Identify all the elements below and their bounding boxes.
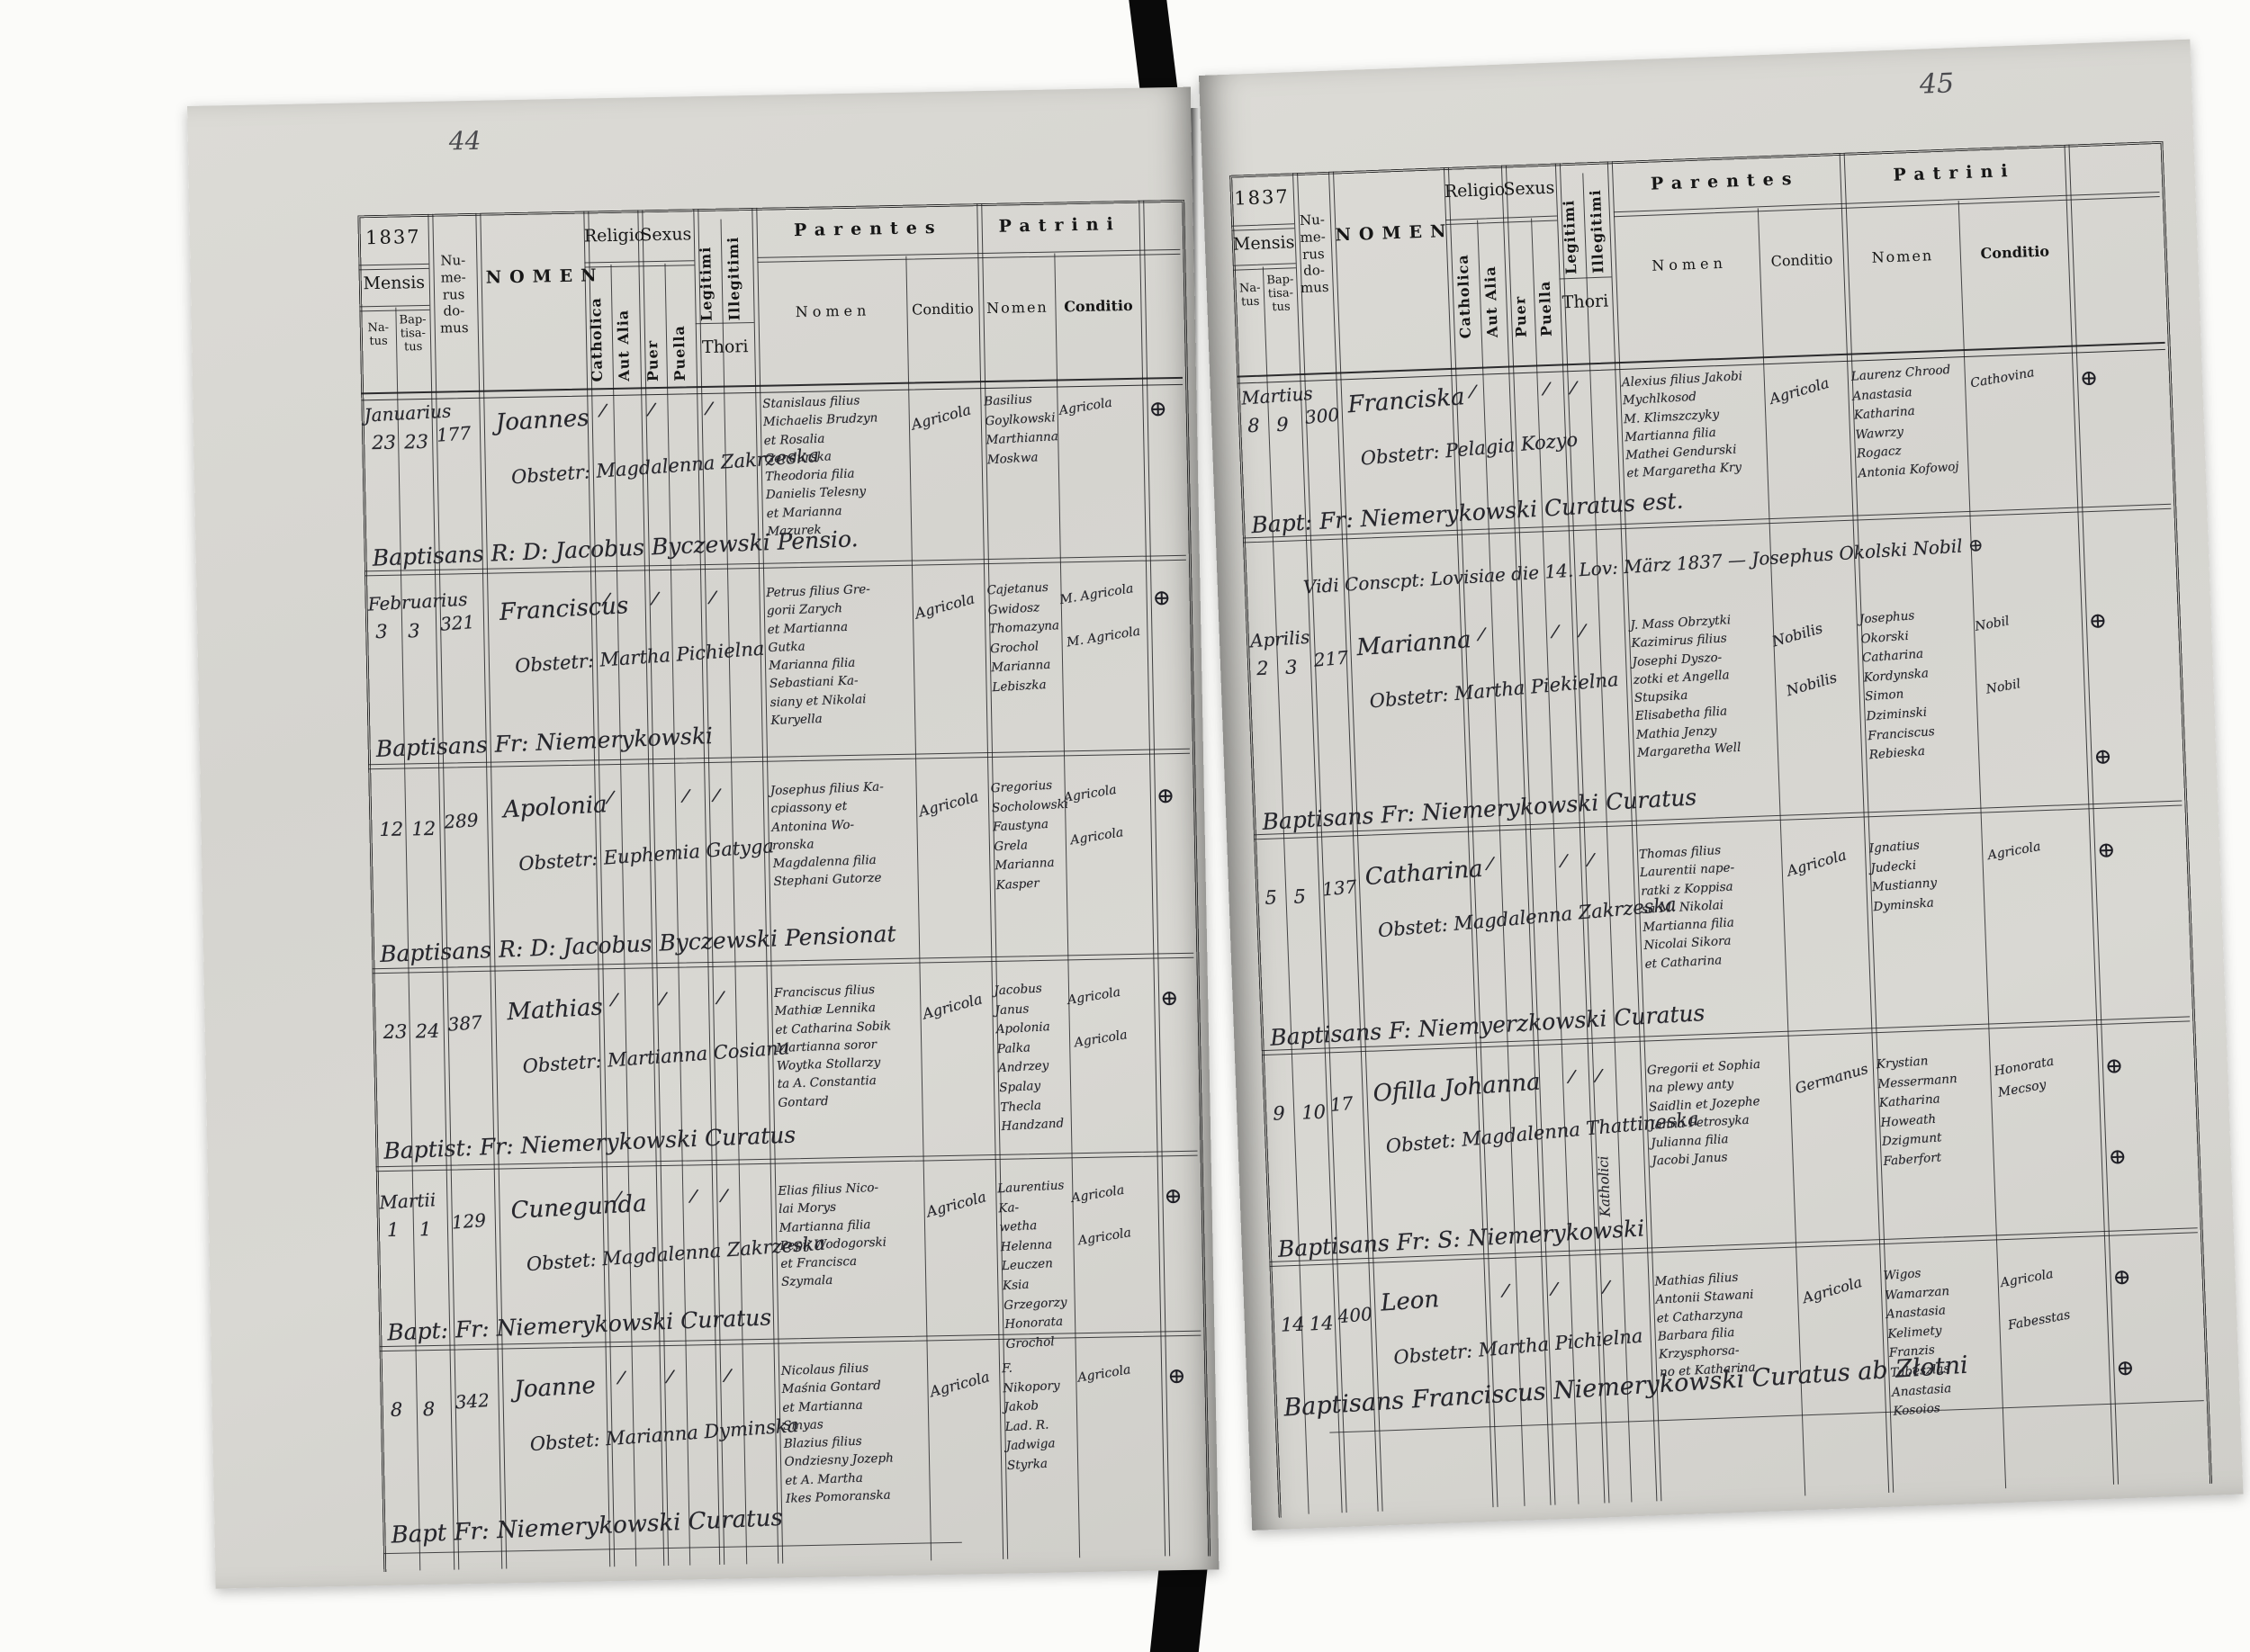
tick-legitimi: / <box>1587 849 1595 870</box>
entry-parents: Thomas filius Laurentii nape- ratki z Ko… <box>1638 839 1781 974</box>
entry-born-day: 9 <box>1273 1102 1285 1124</box>
entry-baptized-day: 9 <box>1276 414 1289 435</box>
book-scan: 44 1837 Mensis Na-tus Bap-tisa-tus Nu-me… <box>0 0 2250 1652</box>
entry-born-day: 12 <box>379 819 403 841</box>
tick-legitimi: / <box>716 988 724 1009</box>
entry-born-day: 1 <box>387 1219 400 1241</box>
col-header-patrini-nomen: Nomen <box>981 299 1053 318</box>
entry-godparents-condition: Honorata Mecsoy <box>1993 1045 2100 1104</box>
col-header-mensis: Mensis <box>360 273 428 293</box>
tick-puella: / <box>1560 850 1568 871</box>
tick-catholica: / <box>1486 853 1494 874</box>
tick-puer: / <box>659 989 667 1010</box>
register-entry: Aprilis 2 3 217 Marianna Obstetr: Martha… <box>1219 592 2218 830</box>
entry-name: Joanne <box>514 1372 597 1404</box>
entry-cross-mark: ⊕ <box>1160 975 1179 1021</box>
entry-born-day: 23 <box>372 432 396 454</box>
entry-godparents-condition: Agricola <box>1076 1355 1162 1389</box>
col-header-illegitimi: Illegitimi <box>1586 176 1606 274</box>
entry-godparents: Gregorius Socholowski Faustyna Grela Mar… <box>990 776 1066 896</box>
entry-house-number: 217 <box>1313 646 1349 670</box>
entry-godparents-condition: M. Agricola M. Agricola <box>1058 578 1150 654</box>
entry-parents: Nicolaus filius Maśnia Gontard et Martia… <box>781 1357 926 1508</box>
entry-godparents: Jacobus Janus Apolonia Palka Andrzey Spa… <box>994 978 1072 1137</box>
col-header-patrini-conditio: Conditio <box>1057 297 1139 316</box>
entry-house-number: 342 <box>454 1389 490 1414</box>
entry-parents-condition: Agricola <box>928 1368 991 1400</box>
entry-godparents: Laurentius Ka- wetha Helenna Leuczen Ksi… <box>997 1176 1076 1354</box>
entry-godparents: F. Nikopory Jakob Lad. R. Jadwiga Styrka <box>1002 1356 1078 1477</box>
entry-name: Marianna <box>1355 626 1471 661</box>
entry-parents-condition: Agricola <box>913 589 976 622</box>
entry-parents: Gregorii et Sophia na plewy anty Saidlin… <box>1646 1055 1788 1172</box>
page-number: 44 <box>448 126 481 157</box>
entry-month: Martii <box>379 1188 452 1213</box>
entry-godparents-condition: Agricola <box>1986 829 2089 867</box>
entry-baptized-day: 3 <box>408 620 420 642</box>
entry-cross-mark: ⊕ <box>1152 575 1171 621</box>
entry-house-number: 321 <box>439 611 475 635</box>
tick-puer: / <box>666 1367 674 1387</box>
entry-parents-condition: Agricola <box>909 400 972 433</box>
entry-cross-mark: ⊕ <box>1164 1173 1183 1219</box>
entry-name: Ofilla Johanna <box>1372 1069 1542 1108</box>
entry-house-number: 289 <box>443 809 479 833</box>
tick-puer: / <box>1551 1279 1559 1299</box>
entry-parents: Elias filius Nico- lai Morys Martianna f… <box>778 1177 921 1291</box>
entry-baptized-day: 24 <box>416 1020 440 1043</box>
entry-baptized-day: 14 <box>1309 1312 1334 1334</box>
col-header-sexus: Sexus <box>638 224 694 245</box>
entry-house-number: 400 <box>1337 1303 1373 1327</box>
tick-legitimi: / <box>1603 1277 1611 1297</box>
entry-baptized-day: 23 <box>404 431 428 453</box>
entry-house-number: 129 <box>451 1209 487 1234</box>
entry-godparents: Cajetanus Gwidosz Thomazyna Grochol Mari… <box>986 578 1063 698</box>
entry-godparents-condition: Agricola Agricola <box>1062 776 1154 852</box>
tick-legitimi: / <box>1570 378 1578 399</box>
register-entry: 5 5 137 Catharina Obstet: Magdalenna Zak… <box>1228 822 2226 1046</box>
col-header-thori: Thori <box>696 337 754 357</box>
entry-cross-mark: ⊕ <box>2079 355 2099 401</box>
tick-catholica: / <box>1469 382 1477 402</box>
entry-parents: Stanislaus filius Michaelis Brudzyn et R… <box>762 390 907 541</box>
col-header-puella: Puella <box>670 287 688 381</box>
entry-name: Cunegunda <box>510 1190 647 1225</box>
entry-name: Catharina <box>1364 856 1484 891</box>
tick-puella: / <box>682 786 690 806</box>
tick-legitimi: / <box>705 399 713 419</box>
tick-puella: / <box>1568 1066 1576 1087</box>
col-header-religio: Religio <box>1444 180 1503 202</box>
entry-month <box>1266 1072 1324 1076</box>
entry-godparents: Josephus Okorski Catharina Kordynska Sim… <box>1858 603 1977 766</box>
col-header-nomen: NOMEN <box>1335 221 1444 245</box>
col-header-patrini: Patrini <box>980 214 1140 237</box>
entry-parents-condition: Nobilis Nobilis <box>1770 619 1839 699</box>
entry-house-number: 300 <box>1304 404 1340 428</box>
entry-godparents: Krystian Messermann Katharina Howeath Dz… <box>1876 1048 1992 1172</box>
entry-parents-condition: Agricola <box>1801 1273 1864 1306</box>
entry-born-day: 8 <box>391 1399 403 1421</box>
col-header-natus: Na-tus <box>364 322 394 350</box>
tick-legitimi: / <box>713 786 721 806</box>
col-header-numerus-domus: Nu-me-rus do-mus <box>431 252 476 337</box>
tick-puella: / <box>1543 379 1551 400</box>
tick-catholica: / <box>1502 1280 1510 1301</box>
tick-catholica: / <box>617 1368 625 1388</box>
entry-parents: Petrus filius Gre- gorii Zarych et Marti… <box>766 579 911 730</box>
entry-month <box>375 990 447 993</box>
tick-legitimi: / <box>708 588 716 608</box>
entry-house-number: 387 <box>447 1011 483 1036</box>
entry-born-day: 3 <box>375 621 388 642</box>
entry-born-day: 8 <box>1247 415 1260 436</box>
entry-month: Martius <box>1240 383 1300 409</box>
entry-name: Leon <box>1380 1286 1440 1317</box>
entry-name: Apolonia <box>502 791 607 823</box>
entry-month <box>372 787 444 791</box>
tick-catholica: / <box>1478 624 1486 645</box>
col-header-sexus: Sexus <box>1501 178 1556 200</box>
entry-cross-mark: ⊕ ⊕ <box>2104 1043 2128 1180</box>
entry-name: Franciscus <box>499 592 629 626</box>
entry-born-day: 2 <box>1256 658 1269 679</box>
register-entry: 9 10 17 Ofilla Johanna Obstet: Magdalenn… <box>1236 1037 2234 1258</box>
tick-legitimi: / <box>1579 621 1587 642</box>
entry-name: Mathias <box>507 993 604 1026</box>
entry-house-number: 17 <box>1329 1092 1354 1116</box>
col-header-baptisatus: Bap-tisa-tus <box>397 314 428 355</box>
entry-born-day: 23 <box>383 1020 408 1043</box>
tick-legitimi: / <box>724 1365 732 1386</box>
entry-born-day: 5 <box>1264 886 1277 908</box>
entry-month <box>1258 856 1316 860</box>
entry-godparents: Laurenz Chrood Anastasia Katharina Wawrz… <box>1850 360 1966 484</box>
entry-month: Februarius <box>367 589 440 615</box>
entry-godparents-condition: Agricola Fabesstas <box>1999 1256 2110 1337</box>
entry-godparents-condition: Cathovina <box>1969 356 2072 395</box>
col-header-parentes-conditio: Conditio <box>907 300 977 318</box>
entry-godparents-condition: Agricola <box>1057 388 1143 422</box>
entry-godparents: Wigos Wamarzan Anastasia Kelimety Franzi… <box>1883 1260 2002 1423</box>
col-header-aut-alia: Aut Alia <box>614 278 633 382</box>
col-header-parentes-nomen: Nomen <box>765 301 900 321</box>
entry-godparents-condition: Agricola Agricola <box>1066 978 1158 1055</box>
entry-cross-mark: ⊕ <box>1167 1353 1186 1399</box>
entry-parents: Alexius filius Jakobi Mychlkosod M. Klim… <box>1621 366 1763 483</box>
tick-catholica: / <box>610 990 618 1010</box>
register-entry: 8 8 342 Joanne Obstet: Marianna Dyminska… <box>211 1351 1218 1527</box>
entry-parents-condition: Agricola <box>917 787 980 820</box>
col-header-puella: Puella <box>1534 243 1555 337</box>
entry-baptized-day: 5 <box>1293 885 1306 907</box>
entry-baptized-day: 10 <box>1301 1101 1327 1124</box>
entry-parents: J. Mass Obrzytki Kazimirus filius Joseph… <box>1630 609 1775 762</box>
entry-godparents-condition: Agricola Agricola <box>1070 1176 1162 1252</box>
entry-cross-mark: ⊕ <box>2096 827 2116 873</box>
entry-month: Januarius <box>364 400 436 426</box>
entry-name: Joannes <box>495 405 589 437</box>
entry-house-number: 137 <box>1321 875 1357 900</box>
tick-puella: / <box>1552 622 1560 642</box>
entry-godparents: Basilius Goylkowski Marthianna Moskwa <box>984 389 1058 470</box>
entry-month <box>1273 1282 1331 1287</box>
tick-puer: / <box>651 588 659 609</box>
entry-parents-condition: Agricola <box>1785 846 1848 879</box>
tick-legitimi: / <box>720 1185 728 1206</box>
entry-name: Franciska <box>1347 383 1466 418</box>
entry-month: Aprilis <box>1249 626 1309 652</box>
col-header-illegitimi: Illegitimi <box>724 223 743 320</box>
col-header-parentes: Parentes <box>766 217 971 240</box>
register-page-left: 44 1837 Mensis Na-tus Bap-tisa-tus Nu-me… <box>187 87 1219 1589</box>
entry-cross-mark: ⊕ <box>1156 773 1174 819</box>
col-header-parentes-conditio: Conditio <box>1762 250 1842 270</box>
entry-parents-condition: Agricola <box>921 990 984 1022</box>
entry-parents: Franciscus filius Mathiæ Lennika et Cath… <box>774 979 918 1111</box>
register-page-right: 45 1837 Mensis Na-tus Bap-tisa-tus Nu-me… <box>1199 40 2244 1531</box>
entry-baptized-day: 1 <box>419 1218 432 1240</box>
entry-house-number: 177 <box>436 422 472 446</box>
entry-baptized-day: 12 <box>411 818 436 840</box>
col-header-puer: Puer <box>1510 256 1530 338</box>
tick-puer: / <box>647 400 655 420</box>
entry-parents-condition: Germanus <box>1793 1060 1869 1097</box>
entry-baptized-day: 8 <box>423 1398 436 1420</box>
col-header-year: 1837 <box>1231 185 1293 209</box>
entry-godparents: Ignatius Judecki Mustianny Dyminska <box>1868 832 1982 918</box>
entry-baptized-day: 3 <box>1285 656 1298 678</box>
entry-parents: Josephus filius Ka- cpiassony et Antonin… <box>769 777 913 891</box>
tick-catholica: / <box>607 787 615 808</box>
entry-godparents-condition: Nobil Nobil <box>1974 599 2088 701</box>
entry-parents-condition: Agricola <box>1768 374 1831 408</box>
page-number: 45 <box>1919 67 1954 100</box>
entry-month <box>382 1368 454 1371</box>
tick-puella: / <box>689 1186 697 1207</box>
col-header-baptisatus: Bap-tisa-tus <box>1265 274 1296 315</box>
col-header-natus: Na-tus <box>1236 283 1264 310</box>
col-header-year: 1837 <box>359 226 427 248</box>
entry-cross-mark: ⊕ <box>1148 386 1167 432</box>
entry-cross-mark: ⊕ ⊕ <box>2112 1254 2136 1391</box>
col-header-nomen: NOMEN <box>486 266 583 288</box>
tick-catholica: / <box>598 400 607 421</box>
col-header-mensis: Mensis <box>1233 232 1295 254</box>
entry-parents-condition: Agricola <box>924 1188 987 1220</box>
col-header-religio: Religio <box>584 225 638 246</box>
